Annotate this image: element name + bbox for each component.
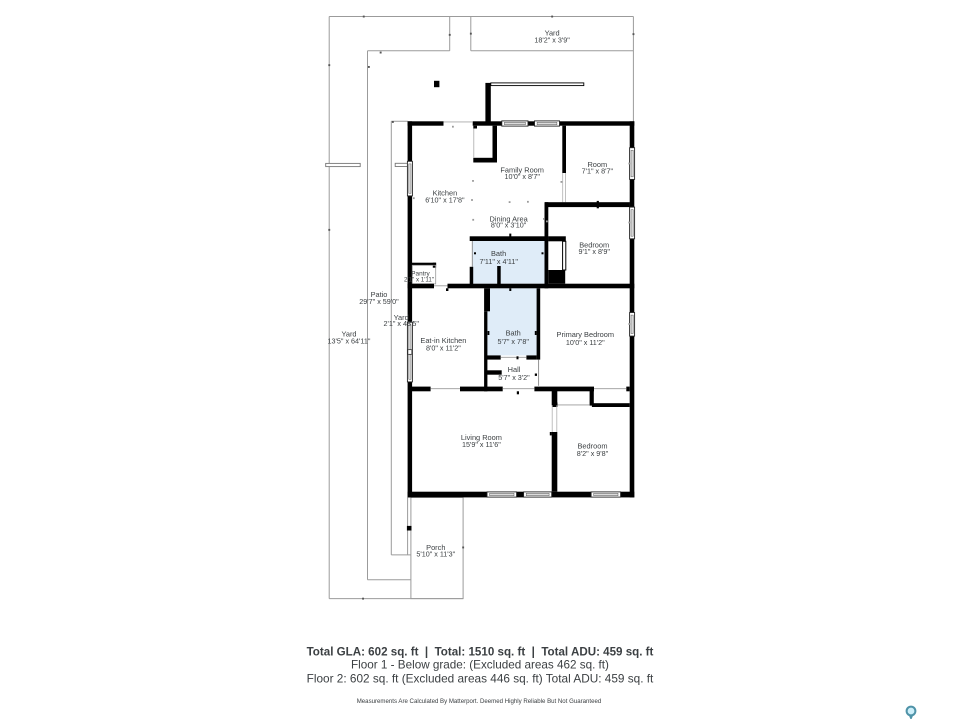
svg-text:5'10" x 11'3": 5'10" x 11'3" — [416, 549, 455, 558]
svg-text:7'11" x 4'11": 7'11" x 4'11" — [480, 257, 519, 266]
svg-text:5'7" x 7'8": 5'7" x 7'8" — [497, 337, 529, 346]
svg-text:29'7" x 59'0": 29'7" x 59'0" — [359, 297, 399, 306]
svg-text:Measurements Are Calculated By: Measurements Are Calculated By Matterpor… — [357, 698, 602, 705]
svg-text:Total GLA: 602 sq. ft | Tota: Total GLA: 602 sq. ft | Total: 1510 sq. … — [307, 646, 654, 659]
svg-text:Floor 1 - Below grade: (Exclud: Floor 1 - Below grade: (Excluded areas 4… — [351, 658, 609, 671]
svg-text:8'2" x 9'8": 8'2" x 9'8" — [577, 449, 609, 458]
svg-text:18'2" x 3'9": 18'2" x 3'9" — [534, 36, 570, 45]
svg-text:8'0" x 3'10": 8'0" x 3'10" — [491, 221, 527, 230]
svg-text:5'7" x 3'2": 5'7" x 3'2" — [498, 373, 530, 382]
svg-text:9'1" x 8'9": 9'1" x 8'9" — [578, 247, 610, 256]
svg-text:10'0" x 8'7": 10'0" x 8'7" — [504, 172, 540, 181]
svg-text:13'5" x 64'11": 13'5" x 64'11" — [328, 337, 371, 346]
svg-text:Floor 2: 602 sq. ft (Excluded: Floor 2: 602 sq. ft (Excluded areas 446 … — [307, 671, 654, 685]
svg-text:8'0" x 11'2": 8'0" x 11'2" — [426, 344, 461, 353]
svg-text:10'0" x 11'2": 10'0" x 11'2" — [566, 338, 605, 347]
svg-text:2'1" x 1'11": 2'1" x 1'11" — [404, 276, 434, 283]
svg-text:2'1" x 48'5": 2'1" x 48'5" — [383, 319, 419, 328]
svg-text:6'10" x 17'8": 6'10" x 17'8" — [425, 195, 465, 204]
svg-text:15'9" x 11'6": 15'9" x 11'6" — [462, 440, 501, 449]
svg-text:7'1" x 8'7": 7'1" x 8'7" — [582, 167, 614, 176]
